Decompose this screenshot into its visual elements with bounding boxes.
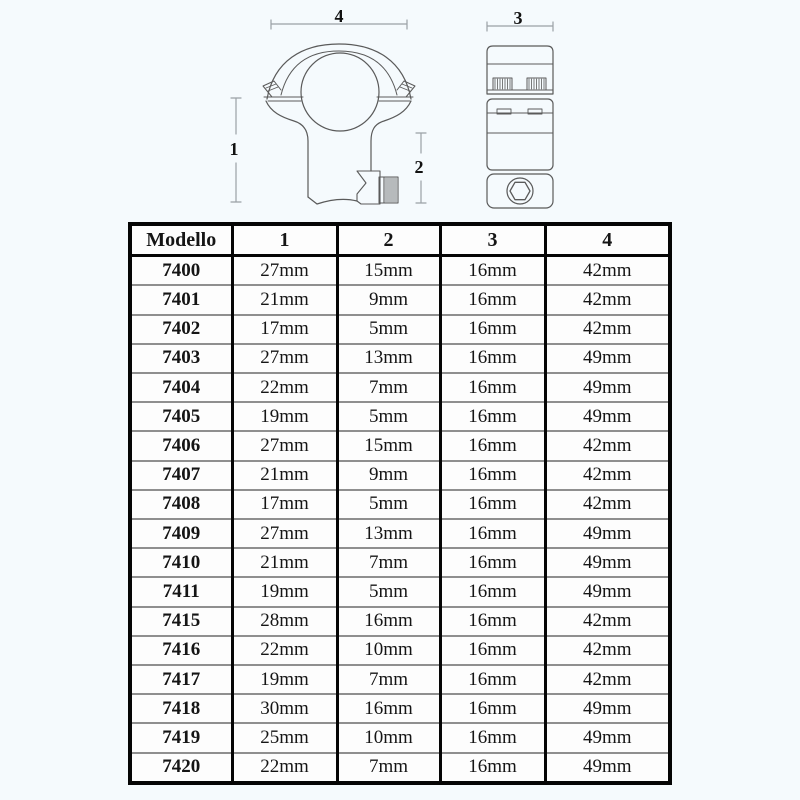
value-cell: 42mm: [545, 285, 670, 314]
value-cell: 7mm: [337, 373, 440, 402]
value-cell: 19mm: [232, 402, 337, 431]
value-cell: 22mm: [232, 753, 337, 783]
value-cell: 16mm: [440, 256, 545, 286]
value-cell: 49mm: [545, 373, 670, 402]
value-cell: 21mm: [232, 461, 337, 490]
value-cell: 42mm: [545, 607, 670, 636]
value-cell: 7mm: [337, 548, 440, 577]
value-cell: 16mm: [440, 344, 545, 373]
hex-bolt-head: [510, 182, 530, 199]
model-cell: 7417: [130, 665, 232, 694]
model-cell: 7406: [130, 431, 232, 460]
value-cell: 9mm: [337, 285, 440, 314]
value-cell: 5mm: [337, 402, 440, 431]
table-row: 740627mm15mm16mm42mm: [130, 431, 670, 460]
table-row: 740519mm5mm16mm49mm: [130, 402, 670, 431]
value-cell: 16mm: [440, 607, 545, 636]
model-cell: 7416: [130, 636, 232, 665]
model-cell: 7409: [130, 519, 232, 548]
dimension-label-2: 2: [415, 158, 424, 176]
value-cell: 16mm: [440, 285, 545, 314]
dimension-label-1: 1: [230, 140, 239, 158]
page: 4 3 1 2 Modello1234 740027mm15mm16mm42mm…: [0, 0, 800, 800]
value-cell: 27mm: [232, 256, 337, 286]
value-cell: 5mm: [337, 315, 440, 344]
table-row: 741119mm5mm16mm49mm: [130, 577, 670, 606]
value-cell: 22mm: [232, 636, 337, 665]
value-cell: 25mm: [232, 723, 337, 752]
table-row: 741622mm10mm16mm42mm: [130, 636, 670, 665]
model-cell: 7403: [130, 344, 232, 373]
model-cell: 7415: [130, 607, 232, 636]
value-cell: 17mm: [232, 315, 337, 344]
table-row: 740327mm13mm16mm49mm: [130, 344, 670, 373]
value-cell: 15mm: [337, 431, 440, 460]
value-cell: 16mm: [440, 431, 545, 460]
value-cell: 27mm: [232, 431, 337, 460]
value-cell: 16mm: [440, 577, 545, 606]
clamp-bracket: [357, 171, 384, 204]
dimension-label-3: 3: [514, 9, 523, 27]
side-screw-left: [493, 78, 512, 90]
value-cell: 16mm: [440, 548, 545, 577]
table-row: 740121mm9mm16mm42mm: [130, 285, 670, 314]
value-cell: 21mm: [232, 548, 337, 577]
technical-drawing: [0, 0, 800, 220]
model-cell: 7400: [130, 256, 232, 286]
value-cell: 15mm: [337, 256, 440, 286]
value-cell: 49mm: [545, 548, 670, 577]
value-cell: 27mm: [232, 519, 337, 548]
value-cell: 16mm: [440, 373, 545, 402]
value-cell: 10mm: [337, 636, 440, 665]
value-cell: 42mm: [545, 636, 670, 665]
value-cell: 10mm: [337, 723, 440, 752]
value-cell: 42mm: [545, 256, 670, 286]
value-cell: 30mm: [232, 694, 337, 723]
table-row: 741830mm16mm16mm49mm: [130, 694, 670, 723]
column-header-3: 3: [440, 224, 545, 256]
value-cell: 27mm: [232, 344, 337, 373]
value-cell: 7mm: [337, 753, 440, 783]
value-cell: 49mm: [545, 577, 670, 606]
value-cell: 16mm: [337, 607, 440, 636]
value-cell: 17mm: [232, 490, 337, 519]
value-cell: 19mm: [232, 577, 337, 606]
table-row: 740422mm7mm16mm49mm: [130, 373, 670, 402]
value-cell: 16mm: [440, 315, 545, 344]
value-cell: 42mm: [545, 315, 670, 344]
value-cell: 16mm: [440, 723, 545, 752]
table-row: 741528mm16mm16mm42mm: [130, 607, 670, 636]
value-cell: 16mm: [440, 461, 545, 490]
model-cell: 7420: [130, 753, 232, 783]
value-cell: 49mm: [545, 694, 670, 723]
model-cell: 7402: [130, 315, 232, 344]
table-row: 742022mm7mm16mm49mm: [130, 753, 670, 783]
value-cell: 5mm: [337, 490, 440, 519]
table-header-row: Modello1234: [130, 224, 670, 256]
table-row: 741925mm10mm16mm49mm: [130, 723, 670, 752]
model-cell: 7404: [130, 373, 232, 402]
spec-table: Modello1234 740027mm15mm16mm42mm740121mm…: [128, 222, 672, 785]
value-cell: 49mm: [545, 723, 670, 752]
model-cell: 7408: [130, 490, 232, 519]
dimension-label-4: 4: [335, 7, 344, 25]
table-row: 740927mm13mm16mm49mm: [130, 519, 670, 548]
value-cell: 5mm: [337, 577, 440, 606]
model-cell: 7410: [130, 548, 232, 577]
value-cell: 49mm: [545, 402, 670, 431]
model-cell: 7418: [130, 694, 232, 723]
column-header-2: 2: [337, 224, 440, 256]
model-cell: 7411: [130, 577, 232, 606]
value-cell: 16mm: [440, 753, 545, 783]
scope-ring-side-view: [487, 46, 553, 208]
model-cell: 7419: [130, 723, 232, 752]
value-cell: 9mm: [337, 461, 440, 490]
scope-ring-front-view: [263, 44, 415, 204]
table-row: 740817mm5mm16mm42mm: [130, 490, 670, 519]
value-cell: 42mm: [545, 461, 670, 490]
value-cell: 42mm: [545, 665, 670, 694]
column-header-1: 1: [232, 224, 337, 256]
side-screw-right: [527, 78, 546, 90]
column-header-modello: Modello: [130, 224, 232, 256]
table-row: 740027mm15mm16mm42mm: [130, 256, 670, 286]
value-cell: 49mm: [545, 519, 670, 548]
value-cell: 49mm: [545, 344, 670, 373]
value-cell: 42mm: [545, 431, 670, 460]
model-cell: 7405: [130, 402, 232, 431]
value-cell: 16mm: [440, 402, 545, 431]
model-cell: 7407: [130, 461, 232, 490]
value-cell: 22mm: [232, 373, 337, 402]
value-cell: 16mm: [440, 490, 545, 519]
table-row: 740217mm5mm16mm42mm: [130, 315, 670, 344]
value-cell: 13mm: [337, 519, 440, 548]
value-cell: 13mm: [337, 344, 440, 373]
column-header-4: 4: [545, 224, 670, 256]
value-cell: 28mm: [232, 607, 337, 636]
value-cell: 16mm: [440, 519, 545, 548]
value-cell: 49mm: [545, 753, 670, 783]
table-row: 740721mm9mm16mm42mm: [130, 461, 670, 490]
value-cell: 16mm: [440, 694, 545, 723]
value-cell: 21mm: [232, 285, 337, 314]
value-cell: 16mm: [337, 694, 440, 723]
table-row: 741021mm7mm16mm49mm: [130, 548, 670, 577]
ring-bore: [301, 53, 379, 131]
model-cell: 7401: [130, 285, 232, 314]
value-cell: 7mm: [337, 665, 440, 694]
value-cell: 19mm: [232, 665, 337, 694]
knurled-nut: [384, 177, 398, 203]
value-cell: 16mm: [440, 636, 545, 665]
table-row: 741719mm7mm16mm42mm: [130, 665, 670, 694]
value-cell: 42mm: [545, 490, 670, 519]
value-cell: 16mm: [440, 665, 545, 694]
